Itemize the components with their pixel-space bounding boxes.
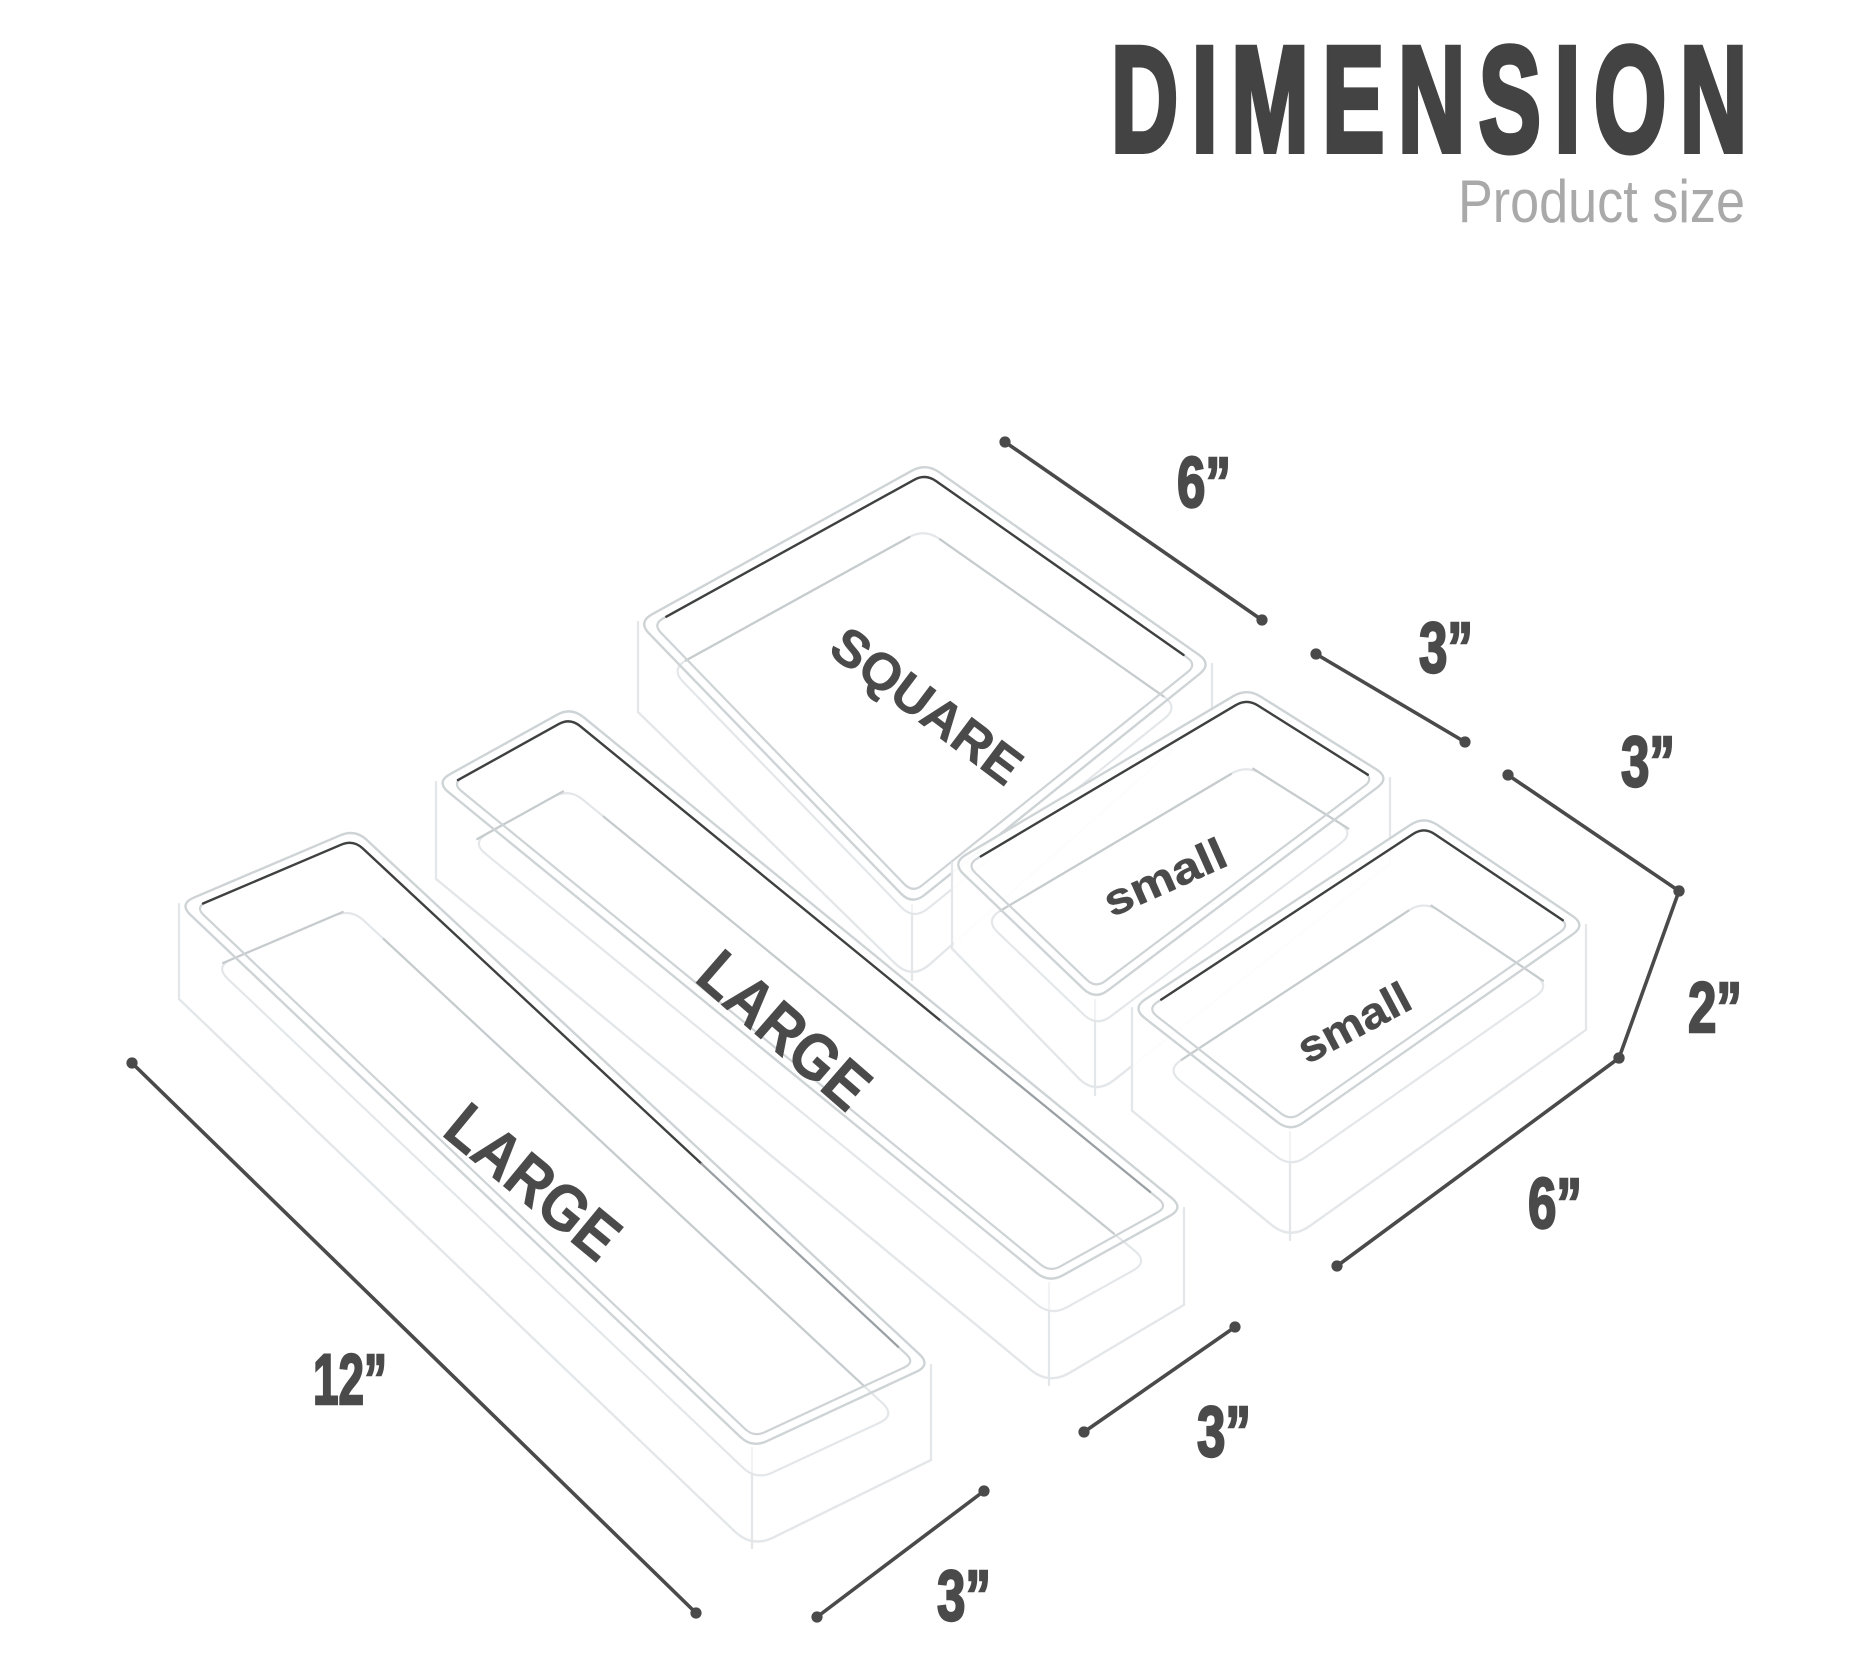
- svg-text:3”: 3”: [1419, 609, 1473, 688]
- svg-text:2”: 2”: [1688, 969, 1742, 1048]
- svg-text:6”: 6”: [1528, 1165, 1582, 1244]
- svg-text:3”: 3”: [1197, 1393, 1251, 1472]
- svg-text:DIMENSION: DIMENSION: [1111, 16, 1761, 183]
- svg-text:Product size: Product size: [1458, 168, 1745, 235]
- svg-text:3”: 3”: [937, 1557, 991, 1636]
- svg-text:12”: 12”: [313, 1341, 387, 1420]
- svg-text:6”: 6”: [1177, 444, 1231, 523]
- svg-text:3”: 3”: [1621, 723, 1675, 802]
